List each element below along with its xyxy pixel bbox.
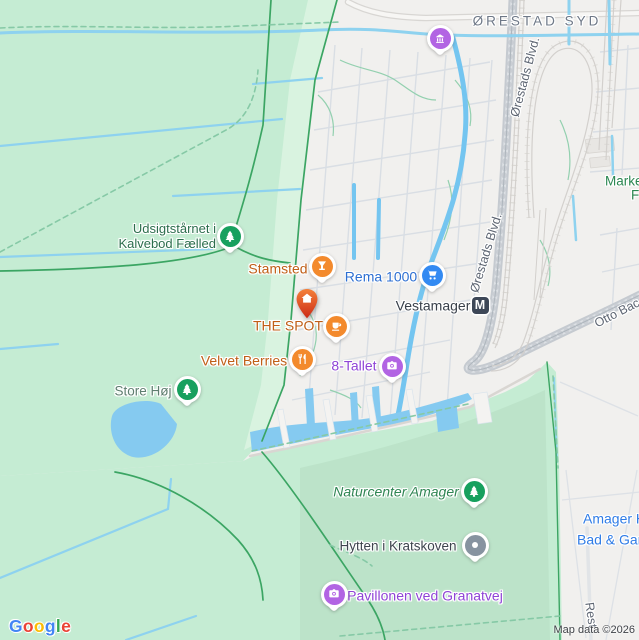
- coffee-cup-icon: [331, 321, 342, 332]
- poi-pin-cafe[interactable]: [323, 313, 350, 348]
- poi-pin-velvet-berries[interactable]: [289, 346, 316, 381]
- tree-icon: [468, 485, 480, 498]
- poi-pin-hytten-i-kratskoven[interactable]: [462, 532, 489, 567]
- poi-label-hytten-i-kratskoven[interactable]: Hytten i Kratskoven: [339, 539, 456, 554]
- shopping-cart-icon: [426, 269, 438, 281]
- poi-pin-the-spot[interactable]: [295, 288, 319, 320]
- google-logo[interactable]: Google: [9, 616, 71, 637]
- poi-label-marked-line2[interactable]: F: [631, 188, 639, 203]
- poi-label-vestamager[interactable]: Vestamager: [396, 299, 471, 314]
- restaurant-icon: [296, 353, 308, 365]
- camera-icon: [328, 588, 340, 600]
- poi-pin-pavillonen[interactable]: [321, 581, 348, 616]
- poi-pin-stamsted[interactable]: [309, 253, 336, 288]
- poi-pin-store-hoej[interactable]: [174, 376, 201, 411]
- map-viewport[interactable]: ØRESTAD SYD Ørestads Blvd. Ørestads Blvd…: [0, 0, 639, 640]
- poi-label-pavillonen[interactable]: Pavillonen ved Granatvej: [347, 589, 503, 604]
- poi-label-marked-line1[interactable]: Marke: [605, 174, 639, 189]
- poi-label-rema-1000[interactable]: Rema 1000: [345, 270, 417, 285]
- poi-label-stamsted[interactable]: Stamsted: [248, 262, 307, 277]
- district-label-orestad-syd: ØRESTAD SYD: [473, 14, 602, 29]
- small-pond: [435, 399, 459, 432]
- tree-icon: [181, 383, 193, 396]
- poi-label-velvet-berries[interactable]: Velvet Berries: [201, 354, 287, 369]
- poi-pin-udsigtstaarnet[interactable]: [217, 223, 244, 258]
- map-attribution: Map data ©2026: [554, 624, 636, 636]
- poi-pin-museum[interactable]: [427, 25, 454, 60]
- metro-station-icon[interactable]: M: [472, 297, 489, 314]
- museum-icon: [434, 32, 446, 44]
- poi-label-amager-line2[interactable]: Bad & Gar: [577, 533, 639, 548]
- tree-icon: [224, 230, 236, 243]
- dot-icon: [472, 542, 478, 548]
- poi-label-naturcenter-amager[interactable]: Naturcenter Amager: [333, 485, 459, 500]
- poi-label-udsigtstaarnet[interactable]: Udsigtstårnet i Kalvebod Fælled: [92, 221, 216, 251]
- poi-pin-8-tallet[interactable]: [379, 353, 406, 388]
- poi-label-the-spot[interactable]: THE SPOT: [253, 319, 323, 334]
- poi-pin-naturcenter-amager[interactable]: [461, 478, 488, 513]
- camera-icon: [386, 360, 398, 372]
- poi-label-amager-line1[interactable]: Amager H: [583, 512, 639, 527]
- poi-label-store-hoej[interactable]: Store Høj: [114, 384, 171, 399]
- cocktail-icon: [316, 260, 328, 272]
- poi-label-8-tallet[interactable]: 8-Tallet: [331, 359, 376, 374]
- poi-pin-rema-1000[interactable]: [419, 262, 446, 297]
